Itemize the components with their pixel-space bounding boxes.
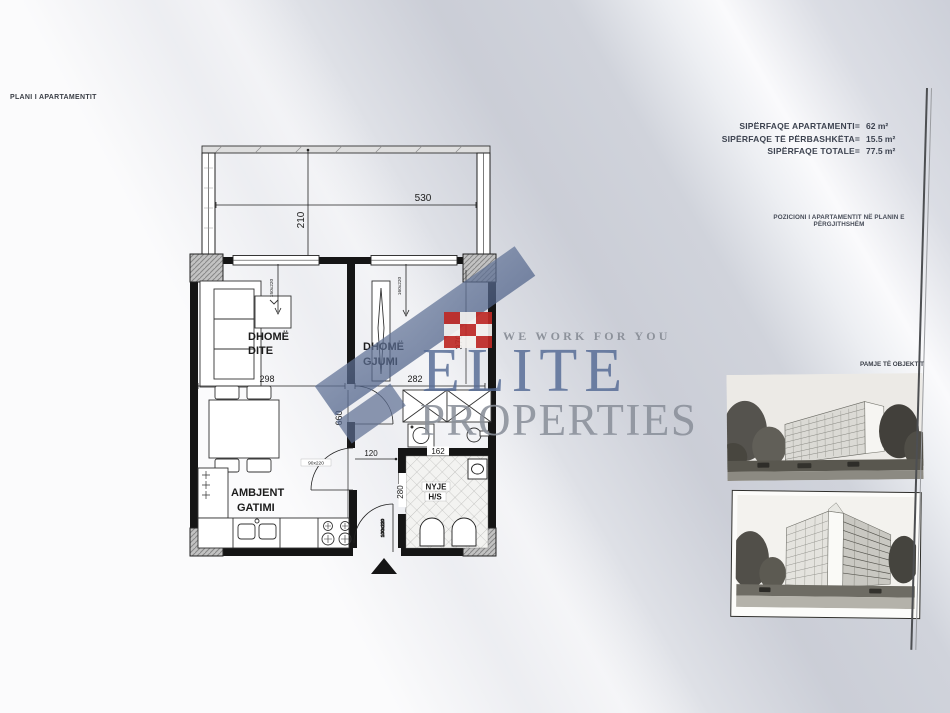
area-value-common: 15.5 m²: [860, 133, 910, 146]
svg-text:120: 120: [364, 449, 378, 458]
svg-text:162: 162: [431, 447, 445, 456]
bidet: [452, 518, 476, 546]
door-kitchen-label: 90x220: [301, 459, 331, 467]
boiler-unit: [198, 468, 228, 518]
balcony-window-right: [477, 153, 490, 256]
area-label-apartment: SIPËRFAQE APARTAMENTI=: [698, 120, 860, 133]
building-photo-2: [730, 490, 922, 619]
street: [727, 459, 923, 481]
svg-text:530: 530: [415, 193, 432, 204]
wall-bottom-left: [223, 548, 353, 556]
position-note: POZICIONI I APARTAMENTIT NË PLANIN E PËR…: [750, 214, 928, 228]
window-living: [233, 256, 319, 266]
dim-balcony-width: 530: [216, 193, 476, 208]
svg-text:160x220: 160x220: [397, 276, 403, 295]
balcony-window-left: [202, 153, 215, 256]
logo-brand-name-2: PROPERTIES: [420, 398, 697, 443]
door-bedroom: [355, 386, 393, 424]
dim-hall-width: 120: [355, 449, 397, 460]
wall-bottom-right: [401, 548, 463, 556]
window-bedroom: [371, 256, 457, 266]
entry-arrow-marker: [371, 558, 397, 574]
kitchen: [198, 386, 351, 548]
room-label-bedroom-2: GJUMI: [363, 356, 398, 368]
page-edge-line-dark: [910, 88, 927, 650]
room-label-kitchen-1: AMBJENT: [231, 487, 284, 499]
dining-table: [209, 386, 279, 472]
area-label-common: SIPËRFAQE TË PËRBASHKËTA=: [698, 133, 860, 146]
svg-text:298: 298: [259, 374, 274, 384]
room-label-bedroom-1: DHOMË: [363, 340, 404, 353]
building-photo-1: [726, 373, 923, 486]
table-row: SIPËRFAQE APARTAMENTI= 62 m²: [698, 120, 910, 133]
wall-left: [190, 282, 198, 528]
kitchen-counter: [198, 518, 351, 548]
area-summary-table: SIPËRFAQE APARTAMENTI= 62 m² SIPËRFAQE T…: [698, 120, 910, 158]
toilet: [420, 518, 444, 546]
area-label-total: SIPËRFAQE TOTALE=: [698, 145, 860, 158]
dim-bath-height: 280: [396, 473, 406, 507]
svg-text:280: 280: [396, 485, 405, 499]
svg-text:660: 660: [334, 410, 344, 425]
svg-text:150x220: 150x220: [269, 278, 275, 297]
svg-text:100x220: 100x220: [380, 518, 386, 537]
coffee-table: [255, 296, 291, 328]
dim-bath-width: 162: [427, 447, 449, 457]
photos-caption: PAMJE TË OBJEKTIT: [860, 361, 924, 368]
wall-hall-kitchen: [349, 490, 357, 548]
room-label-bath-1: NYJE: [426, 483, 448, 492]
room-label-kitchen-2: GATIMI: [237, 502, 275, 514]
svg-text:282: 282: [407, 374, 422, 384]
area-value-apartment: 62 m²: [860, 120, 910, 133]
dim-balcony-depth: 210: [296, 149, 309, 256]
area-value-total: 77.5 m²: [860, 145, 910, 158]
scanned-floor-plan-page: PLANI I APARTAMENTIT SIPËRFAQE APARTAMEN…: [0, 0, 950, 713]
page-edge-lines: [910, 88, 934, 650]
svg-text:210: 210: [296, 211, 307, 228]
logo-brand-name: ELITE: [422, 340, 629, 402]
balcony: 530 210: [202, 146, 490, 256]
room-label-bath-2: H/S: [428, 493, 442, 502]
column-top-left: [190, 254, 223, 282]
door-kitchen: [311, 448, 353, 490]
svg-text:90x220: 90x220: [308, 461, 324, 467]
wall-living-bedroom: [347, 264, 355, 384]
room-label-living-1: DHOMË: [248, 330, 289, 343]
table-row: SIPËRFAQE TOTALE= 77.5 m²: [698, 145, 910, 158]
table-row: SIPËRFAQE TË PËRBASHKËTA= 15.5 m²: [698, 133, 910, 146]
washbasin: [468, 459, 487, 479]
door-entry: 100x220: [354, 504, 393, 552]
street: [736, 584, 915, 609]
wall-bath-left-lower: [398, 514, 406, 548]
column-top-right: [463, 254, 496, 282]
window-leader-bedroom: 160x220: [397, 264, 409, 316]
page-title: PLANI I APARTAMENTIT: [10, 94, 97, 101]
living-room: [200, 281, 390, 387]
bathroom: NYJE H/S 162 280: [396, 447, 488, 549]
room-label-living-2: DITE: [248, 345, 273, 357]
